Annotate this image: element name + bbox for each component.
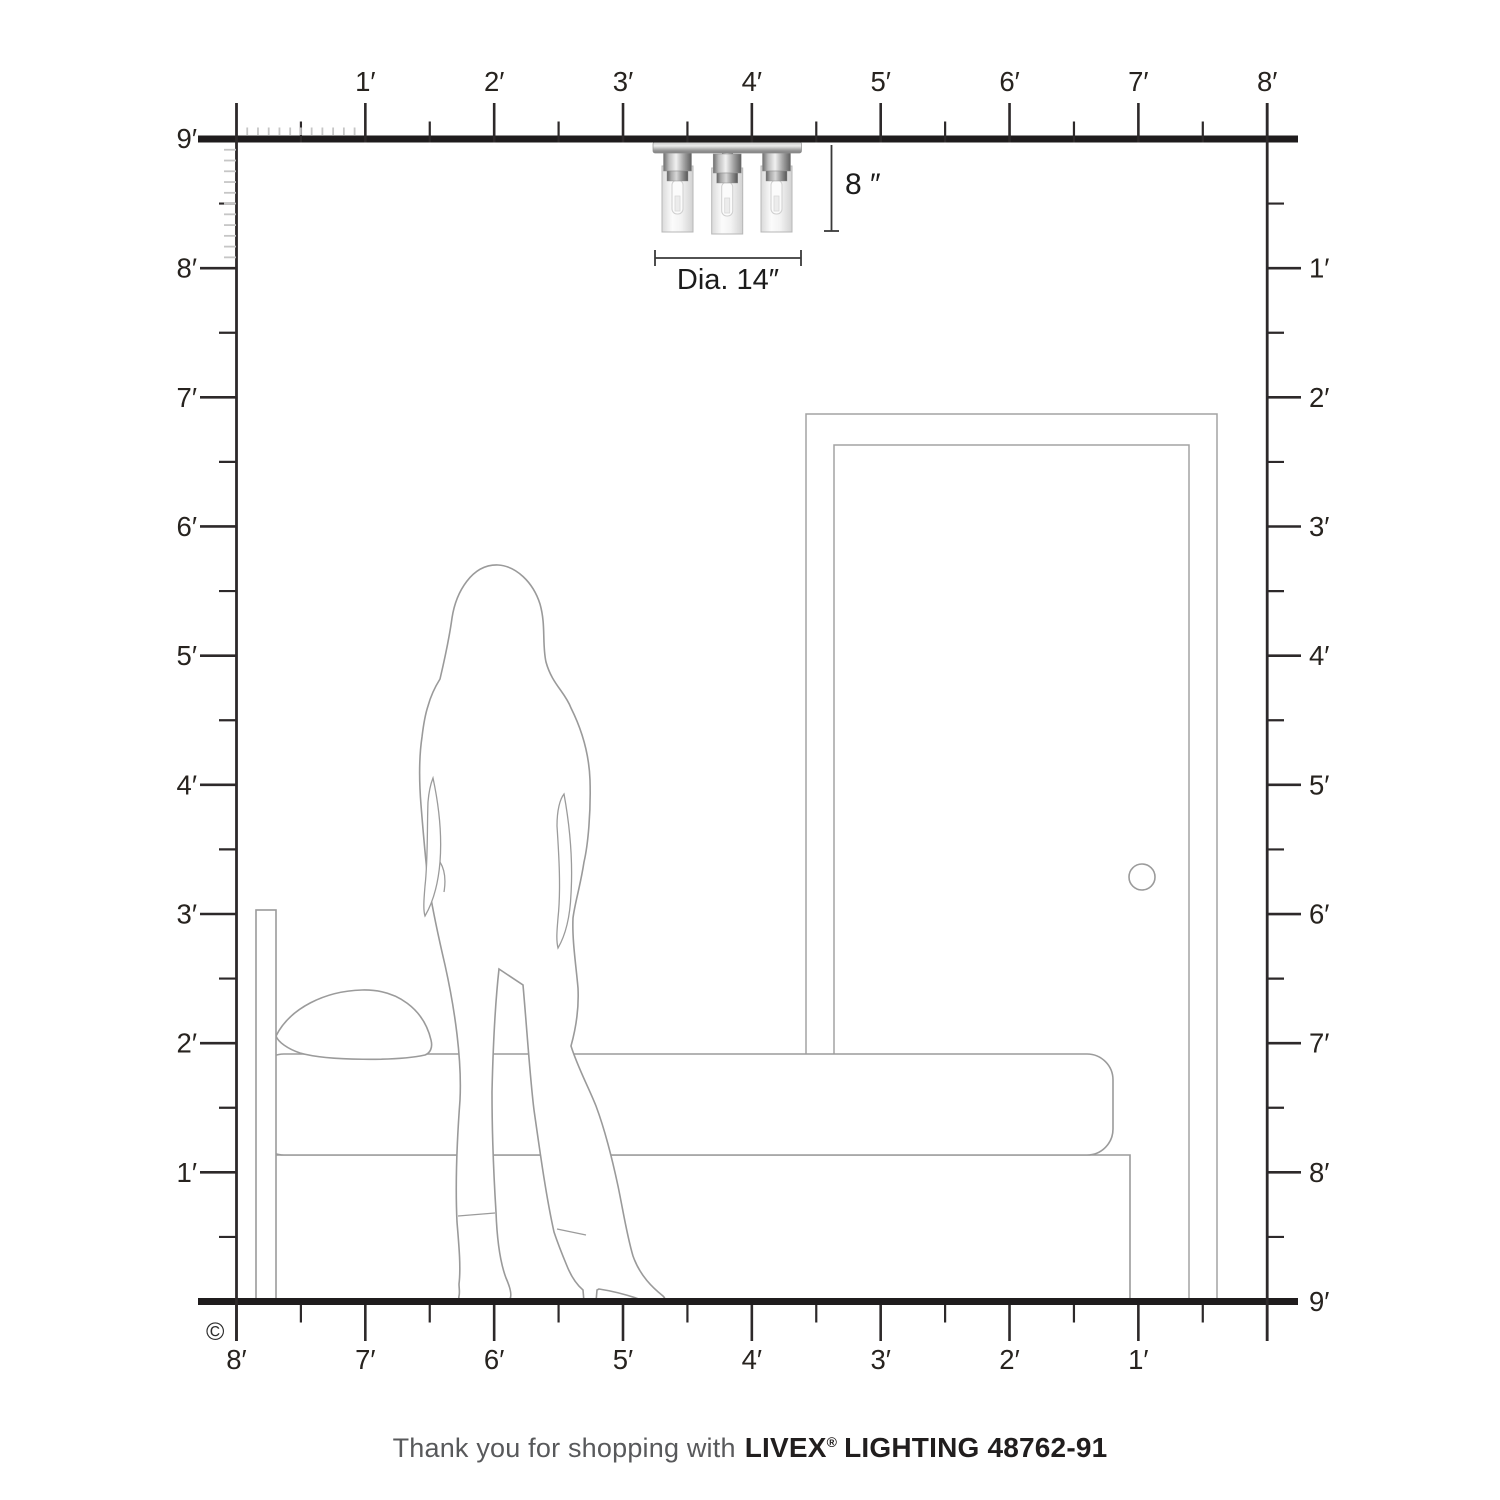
right-ruler-label: 4′ [1309, 640, 1329, 671]
top-ruler-label: 3′ [613, 66, 633, 97]
product-dimension-diagram-page: 8 ″ Dia. 14″ 1′2′3′4′5′6′7′8′8′7′6′5′4′3… [0, 0, 1500, 1500]
ceiling-height-label: 9′ [177, 123, 197, 154]
left-ruler-label: 7′ [177, 382, 197, 413]
bottom-ruler-label: 1′ [1128, 1344, 1148, 1375]
right-ruler-label: 8′ [1309, 1157, 1329, 1188]
fixture-canopy [653, 142, 802, 153]
ceiling-line [198, 136, 1298, 143]
right-ruler-label: 2′ [1309, 382, 1329, 413]
floor-height-label: 9′ [1309, 1286, 1329, 1317]
brand-name: LIVEX [745, 1432, 827, 1463]
lamp-shade-center [712, 154, 743, 234]
copyright-symbol: © [206, 1318, 225, 1346]
top-ruler-label: 8′ [1257, 66, 1277, 97]
product-number: LIGHTING 48762-91 [844, 1432, 1107, 1463]
top-ruler-label: 2′ [484, 66, 504, 97]
height-dimension-label: 8 ″ [845, 168, 881, 201]
door-knob [1129, 864, 1155, 890]
lamp-shade-right [761, 152, 792, 232]
left-ruler-label: 8′ [177, 253, 197, 284]
top-ruler-label: 1′ [355, 66, 375, 97]
diameter-dimension-label: Dia. 14″ [677, 264, 779, 296]
bottom-ruler-label: 7′ [355, 1344, 375, 1375]
right-ruler-label: 5′ [1309, 769, 1329, 800]
right-ruler-label: 6′ [1309, 899, 1329, 930]
bottom-ruler-label: 8′ [226, 1344, 246, 1375]
top-ruler-label: 5′ [870, 66, 890, 97]
top-ruler-label: 4′ [742, 66, 762, 97]
top-ruler-label: 6′ [999, 66, 1019, 97]
footer-brand: LIVEX®LIGHTING 48762-91 [745, 1432, 1108, 1463]
left-ruler-label: 1′ [177, 1157, 197, 1188]
bed-base [258, 1155, 1130, 1301]
top-ruler-label: 7′ [1128, 66, 1148, 97]
pillow [276, 990, 432, 1059]
mattress [258, 1054, 1113, 1155]
bottom-ruler-label: 2′ [999, 1344, 1019, 1375]
lamp-shade-left [662, 152, 693, 232]
left-ruler-label: 3′ [177, 898, 197, 929]
bottom-ruler-label: 3′ [870, 1344, 890, 1375]
right-ruler-label: 7′ [1309, 1028, 1329, 1059]
floor-line [198, 1298, 1298, 1305]
footer-message: Thank you for shopping withLIVEX®LIGHTIN… [0, 1432, 1500, 1464]
left-ruler-label: 2′ [177, 1028, 197, 1059]
right-ruler-label: 1′ [1309, 253, 1329, 284]
left-ruler-label: 6′ [177, 511, 197, 542]
right-ruler-label: 3′ [1309, 511, 1329, 542]
dimension-diagram: 8 ″ Dia. 14″ 1′2′3′4′5′6′7′8′8′7′6′5′4′3… [0, 0, 1500, 1500]
left-ruler-label: 5′ [177, 640, 197, 671]
bottom-ruler-label: 4′ [742, 1344, 762, 1375]
bottom-ruler-label: 5′ [613, 1344, 633, 1375]
headboard-post [256, 910, 276, 1301]
registered-trademark-symbol: ® [827, 1434, 838, 1450]
left-ruler-label: 4′ [177, 769, 197, 800]
bottom-ruler-label: 6′ [484, 1344, 504, 1375]
footer-thanks-text: Thank you for shopping with [393, 1433, 736, 1463]
ceiling-light-fixture [653, 142, 802, 234]
